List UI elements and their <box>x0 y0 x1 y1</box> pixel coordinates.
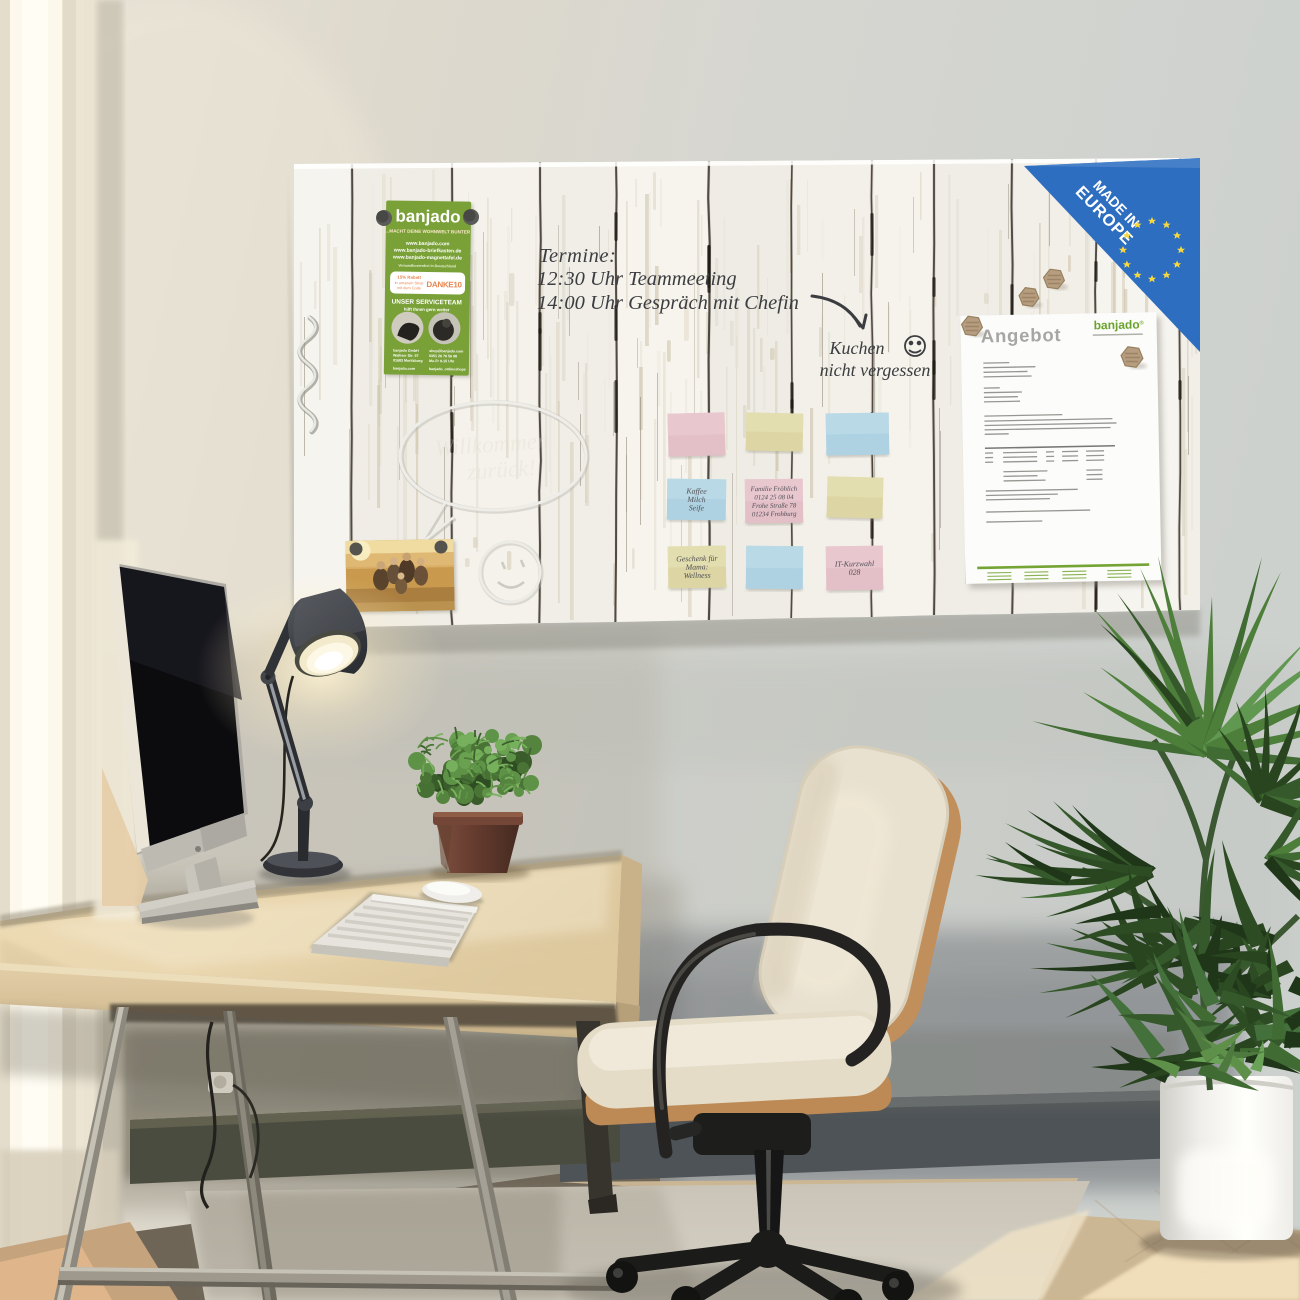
svg-text:0351 26 76 56 98: 0351 26 76 56 98 <box>429 354 457 358</box>
svg-text:banjado®: banjado® <box>1093 317 1143 332</box>
svg-text:Familie Fröhlich: Familie Fröhlich <box>750 486 798 494</box>
svg-text:Wellness: Wellness <box>684 571 711 580</box>
svg-text:www.banjado-magnettafel.de: www.banjado-magnettafel.de <box>392 255 462 262</box>
svg-text:Mo-Fr 9-15 Uhr: Mo-Fr 9-15 Uhr <box>429 359 455 363</box>
svg-text:0124 25 08 04: 0124 25 08 04 <box>754 494 794 501</box>
svg-text:zurück!: zurück! <box>465 455 537 485</box>
svg-text:Angebot: Angebot <box>981 324 1062 347</box>
svg-text:Termine:: Termine: <box>539 245 616 267</box>
svg-text:banjado_onlineshops: banjado_onlineshops <box>429 367 466 372</box>
svg-text:nicht vergessen: nicht vergessen <box>820 360 931 380</box>
svg-text:banjado GmbH: banjado GmbH <box>393 349 419 353</box>
svg-text:15% Rabatt: 15% Rabatt <box>397 275 421 280</box>
svg-text:www.banjado.com: www.banjado.com <box>405 241 450 248</box>
svg-text:01234 Frohburg: 01234 Frohburg <box>752 511 797 518</box>
svg-text:www.banjado-briefkasten.de: www.banjado-briefkasten.de <box>393 248 462 255</box>
svg-text:Kuchen: Kuchen <box>829 338 885 358</box>
svg-text:14:00 Uhr Gespräch mit Chefin: 14:00 Uhr Gespräch mit Chefin <box>537 292 799 314</box>
svg-text:shop@banjado.com: shop@banjado.com <box>429 349 463 353</box>
svg-text:12:30 Uhr Teammeeting: 12:30 Uhr Teammeeting <box>537 268 737 290</box>
svg-text:Versandkostenfrei in Deutschla: Versandkostenfrei in Deutschland <box>398 264 456 269</box>
svg-text:Frohe Straße 78: Frohe Straße 78 <box>751 502 797 509</box>
svg-text:Seife: Seife <box>689 503 705 512</box>
svg-text:banjado: banjado <box>395 207 460 227</box>
svg-text:banjado.com: banjado.com <box>393 367 415 371</box>
svg-text:UNSER SERVICETEAM: UNSER SERVICETEAM <box>392 299 462 307</box>
svg-text:mit dem Code: mit dem Code <box>397 286 421 290</box>
svg-text:028: 028 <box>849 568 861 577</box>
svg-text:01683 Moritzburg: 01683 Moritzburg <box>393 359 423 363</box>
svg-text:Walliser Str. 97: Walliser Str. 97 <box>393 354 418 358</box>
svg-text:DANKE10: DANKE10 <box>426 280 462 290</box>
svg-text:in unserem Shop: in unserem Shop <box>395 281 424 285</box>
svg-text:hilft Ihnen gern weiter: hilft Ihnen gern weiter <box>404 307 450 313</box>
